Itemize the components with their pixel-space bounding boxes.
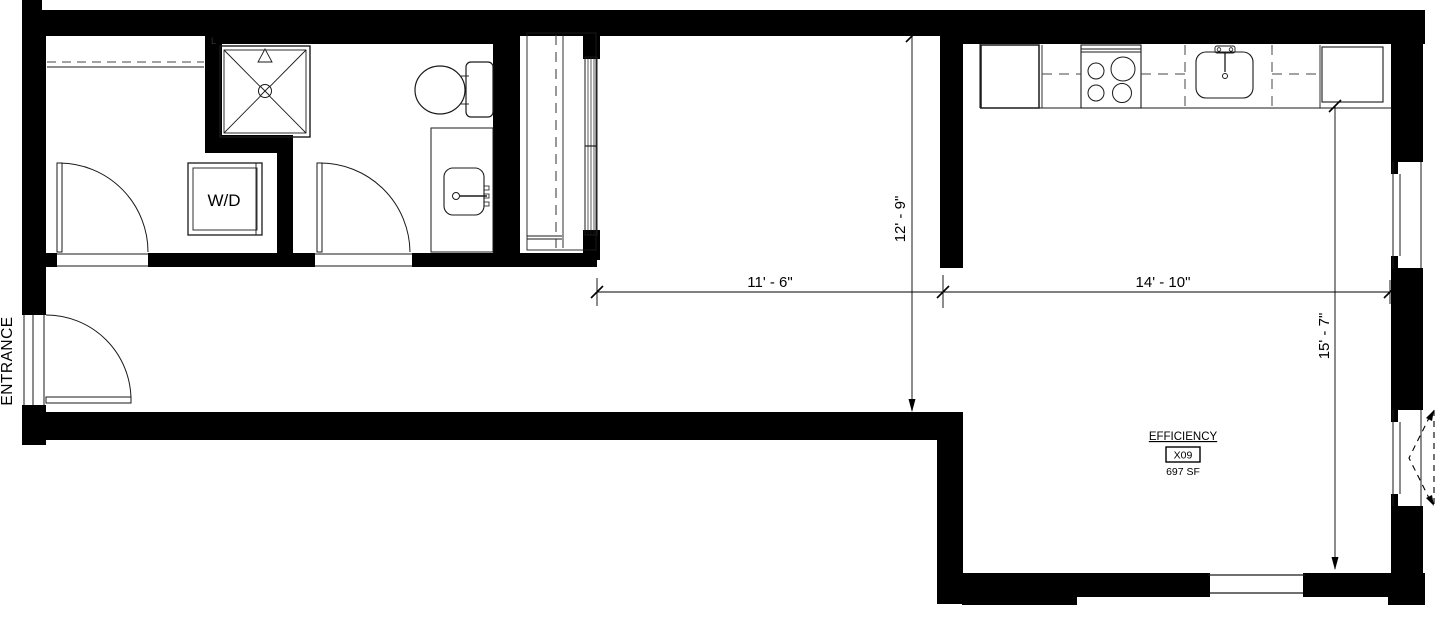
egress-arrowheads xyxy=(1426,410,1434,506)
burner xyxy=(1113,84,1132,103)
bathroom-vanity xyxy=(431,128,493,252)
wall-step xyxy=(937,412,963,604)
door-swing-arc xyxy=(60,163,148,252)
unit-number: X09 xyxy=(1174,450,1193,462)
room-label-group: EFFICIENCY X09 697 SF xyxy=(1149,431,1218,478)
dim-label-living-width: 14' - 10" xyxy=(1136,274,1191,291)
door-leaf xyxy=(46,397,131,403)
interior-walls xyxy=(46,33,963,268)
door-swing-arc xyxy=(46,315,131,400)
wall-right-mid xyxy=(1391,268,1423,410)
faucet-icon xyxy=(453,193,460,200)
dimension-lines xyxy=(591,30,1396,570)
cooktop xyxy=(1081,45,1141,108)
window-jamb xyxy=(1391,162,1398,174)
kitchen xyxy=(980,44,1392,108)
shower-head-icon xyxy=(258,49,272,62)
wall-top-kitchen xyxy=(950,10,1425,44)
burner xyxy=(1111,57,1135,81)
dim-label-bedroom-width: 11' - 6" xyxy=(747,274,792,291)
dim-label-bedroom-depth: 12' - 9" xyxy=(892,196,909,243)
door-swing-arc xyxy=(320,163,410,252)
floor-plan: W/D L xyxy=(0,0,1441,626)
wall-bottom-right-thick xyxy=(962,595,1077,605)
wall-top-bath xyxy=(205,10,517,44)
corner-cabinet xyxy=(1322,47,1383,102)
upper-cabinets-dashed xyxy=(1042,45,1320,108)
wall-left-upper xyxy=(22,10,46,315)
wall-right-upper xyxy=(1391,10,1423,162)
wall-left-lower xyxy=(22,405,46,445)
closet-door xyxy=(57,163,148,266)
exterior-walls xyxy=(22,0,1425,605)
wall-hall xyxy=(46,253,57,267)
wall-hall xyxy=(148,253,315,267)
entrance-label: ENTRANCE xyxy=(0,316,16,405)
burner xyxy=(1088,63,1104,79)
door-leaf xyxy=(317,163,322,252)
window-jamb xyxy=(1391,256,1398,268)
window xyxy=(1393,410,1421,506)
dimension-labels: 11' - 6" 14' - 10" 12' - 9" 15' - 7" xyxy=(747,196,1333,360)
shower xyxy=(220,46,310,137)
bathroom-sink xyxy=(444,168,484,215)
window-jamb xyxy=(1391,494,1398,506)
wall-laundry-bath xyxy=(277,142,293,267)
wall-bottom-right xyxy=(962,573,1425,597)
room-name: EFFICIENCY xyxy=(1149,431,1218,443)
wall-closet-stub-top xyxy=(583,33,600,59)
window-jamb xyxy=(1391,410,1398,422)
wall-bedroom-right xyxy=(940,33,963,268)
wall-bottom-corner-thick xyxy=(1388,595,1425,605)
door-leaf xyxy=(57,163,62,252)
sliding-door xyxy=(585,57,597,235)
bedroom-closet xyxy=(527,33,597,250)
refrigerator xyxy=(981,45,1039,108)
dim-label-living-depth: 15' - 7" xyxy=(1316,313,1333,360)
wall-bottom-left xyxy=(46,412,963,440)
toilet xyxy=(415,62,493,117)
kitchen-sink xyxy=(1196,46,1253,98)
burner xyxy=(1088,85,1104,101)
unit-area: 697 SF xyxy=(1166,466,1200,478)
washer-dryer-label: W/D xyxy=(207,191,240,210)
bathroom xyxy=(315,62,493,266)
bathroom-door xyxy=(315,163,412,266)
dim-arrow xyxy=(909,399,916,412)
wall-hall xyxy=(412,253,597,267)
entrance-door xyxy=(24,315,131,405)
laundry-closet-room: W/D xyxy=(47,62,262,266)
wall-bath-closet xyxy=(493,36,520,253)
window-bottom-wall xyxy=(1208,571,1305,599)
wall-right-lower xyxy=(1391,506,1423,573)
window xyxy=(1393,162,1421,268)
dim-arrow xyxy=(1332,557,1339,570)
fixture-tag: L xyxy=(211,36,216,46)
